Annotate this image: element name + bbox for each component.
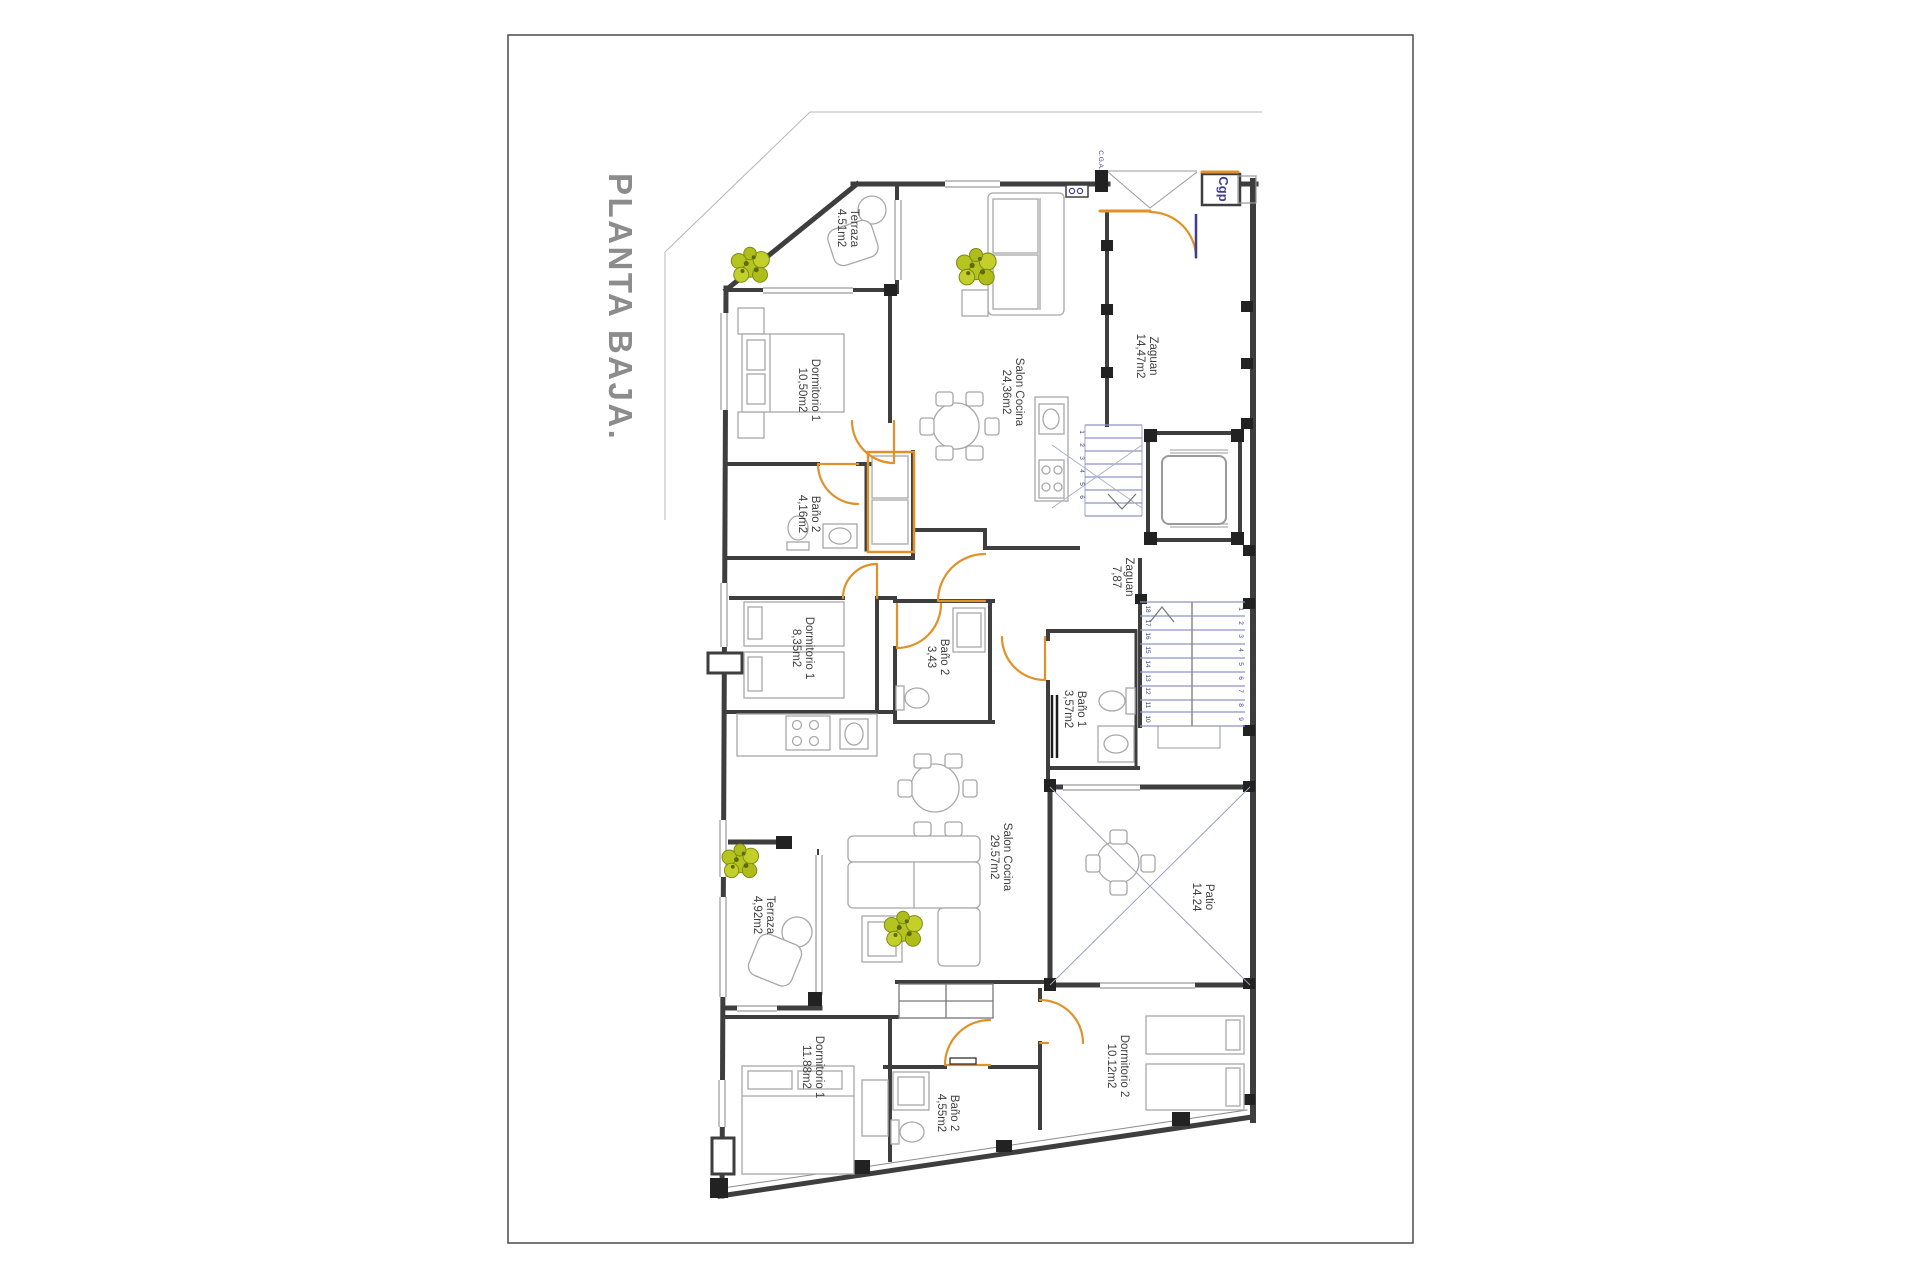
chair bbox=[1110, 881, 1127, 895]
svg-text:14: 14 bbox=[1144, 660, 1151, 668]
chair bbox=[966, 392, 983, 406]
svg-text:2: 2 bbox=[1237, 621, 1244, 625]
dining-table bbox=[933, 403, 979, 449]
floor-plan-canvas: PLANTA BAJA. bbox=[0, 0, 1920, 1280]
svg-text:Salon Cocina: Salon Cocina bbox=[1001, 823, 1013, 892]
closet-panel bbox=[872, 500, 908, 544]
sofa-chaise bbox=[938, 908, 980, 966]
pillow bbox=[747, 340, 765, 370]
side-table bbox=[962, 290, 988, 316]
wardrobe bbox=[862, 1080, 888, 1136]
svg-text:3,43: 3,43 bbox=[925, 646, 937, 668]
svg-text:4: 4 bbox=[1078, 469, 1085, 473]
svg-text:10.12m2: 10.12m2 bbox=[1105, 1044, 1117, 1089]
svg-text:10: 10 bbox=[1144, 715, 1151, 723]
chair bbox=[945, 822, 962, 836]
svg-text:29.57m2: 29.57m2 bbox=[988, 835, 1000, 880]
svg-text:2: 2 bbox=[1078, 443, 1085, 447]
chair bbox=[1110, 830, 1127, 844]
page-title: PLANTA BAJA. bbox=[602, 173, 639, 441]
chair bbox=[898, 780, 912, 797]
toilet-tank bbox=[1126, 688, 1135, 714]
svg-text:1: 1 bbox=[1078, 430, 1085, 434]
cga-label: C.G.A. bbox=[1097, 150, 1104, 170]
svg-text:6: 6 bbox=[1078, 495, 1085, 499]
room-label-dormitorio2-bottom: Dormitorio 2 10.12m2 bbox=[1105, 1035, 1130, 1098]
dining-table bbox=[911, 764, 959, 812]
svg-text:Baño 2: Baño 2 bbox=[809, 496, 821, 532]
toilet-tank bbox=[787, 542, 809, 550]
room-label-patio: Patio 14.24 bbox=[1190, 883, 1215, 912]
svg-text:4: 4 bbox=[1237, 648, 1244, 652]
chair bbox=[914, 822, 931, 836]
stove bbox=[1039, 460, 1064, 498]
svg-text:4,55m2: 4,55m2 bbox=[935, 1094, 947, 1132]
svg-text:Zaguan: Zaguan bbox=[1147, 336, 1159, 375]
pillow bbox=[747, 374, 765, 404]
svg-text:8: 8 bbox=[1237, 703, 1244, 707]
svg-text:11: 11 bbox=[1144, 702, 1151, 709]
svg-text:17: 17 bbox=[1144, 619, 1151, 627]
svg-text:7,87: 7,87 bbox=[1110, 566, 1122, 588]
svg-text:Terraza: Terraza bbox=[764, 896, 776, 935]
chair bbox=[966, 446, 983, 460]
svg-text:3,57m2: 3,57m2 bbox=[1062, 690, 1074, 728]
shower bbox=[953, 608, 985, 652]
svg-text:8,35m2: 8,35m2 bbox=[790, 629, 802, 667]
pillow bbox=[748, 657, 762, 691]
svg-text:4,92m2: 4,92m2 bbox=[751, 896, 763, 934]
svg-text:Baño 2: Baño 2 bbox=[938, 639, 950, 675]
svg-text:5: 5 bbox=[1237, 662, 1244, 666]
toilet-tank bbox=[896, 686, 904, 710]
toilet bbox=[1099, 691, 1125, 711]
nightstand bbox=[738, 308, 764, 334]
room-label-terraza-bottom: Terraza 4,92m2 bbox=[751, 896, 776, 935]
chair bbox=[936, 446, 953, 460]
svg-text:6: 6 bbox=[1237, 676, 1244, 680]
room-label-bano2-top: Baño 2 4,16m2 bbox=[796, 495, 821, 533]
svg-text:18: 18 bbox=[1144, 605, 1151, 613]
sofa-back bbox=[848, 836, 980, 862]
svg-text:Dormitorio 1: Dormitorio 1 bbox=[813, 1036, 825, 1099]
chair bbox=[963, 780, 977, 797]
pillow bbox=[1226, 1020, 1240, 1050]
svg-text:10,50m2: 10,50m2 bbox=[796, 368, 808, 413]
chair bbox=[936, 392, 953, 406]
stove bbox=[786, 716, 830, 750]
svg-text:9: 9 bbox=[1237, 717, 1244, 721]
svg-text:3: 3 bbox=[1078, 456, 1085, 460]
svg-text:3: 3 bbox=[1237, 634, 1244, 638]
svg-text:Dormitorio 2: Dormitorio 2 bbox=[1118, 1035, 1130, 1098]
svg-text:24,36m2: 24,36m2 bbox=[1000, 370, 1012, 415]
svg-text:1: 1 bbox=[1237, 607, 1244, 611]
svg-text:Salon Cocina: Salon Cocina bbox=[1013, 358, 1025, 427]
svg-text:Patio: Patio bbox=[1203, 884, 1215, 910]
toilet bbox=[905, 688, 929, 708]
svg-text:Baño 2: Baño 2 bbox=[948, 1095, 960, 1131]
cgp-label: Cgp bbox=[1216, 176, 1231, 201]
toilet bbox=[900, 1122, 924, 1142]
nightstand bbox=[738, 412, 764, 438]
svg-text:13: 13 bbox=[1144, 674, 1151, 682]
room-label-zaguan-entry: Zaguan 14,47m2 bbox=[1134, 334, 1159, 379]
svg-text:16: 16 bbox=[1144, 632, 1151, 640]
room-label-terraza-top: Terraza 4.51m2 bbox=[835, 209, 860, 248]
patio-table bbox=[1097, 841, 1139, 883]
architectural-sheet: PLANTA BAJA. bbox=[0, 0, 1920, 1280]
room-label-bano1-bottom: Baño 1 3,57m2 bbox=[1062, 690, 1087, 728]
svg-text:14.24: 14.24 bbox=[1190, 883, 1202, 912]
pillow bbox=[1226, 1068, 1240, 1106]
chair bbox=[945, 754, 962, 768]
svg-text:Dormitorio 1: Dormitorio 1 bbox=[803, 617, 815, 680]
pillow bbox=[748, 607, 762, 639]
svg-text:15: 15 bbox=[1144, 646, 1151, 654]
pillow bbox=[748, 1071, 792, 1089]
svg-text:Terraza: Terraza bbox=[848, 209, 860, 248]
sofa-cushion bbox=[993, 199, 1038, 253]
svg-text:Dormitorio 1: Dormitorio 1 bbox=[809, 359, 821, 422]
svg-text:4.51m2: 4.51m2 bbox=[835, 209, 847, 247]
svg-text:12: 12 bbox=[1144, 687, 1151, 695]
chair bbox=[1141, 855, 1155, 872]
svg-text:7: 7 bbox=[1237, 689, 1244, 693]
svg-text:4,16m2: 4,16m2 bbox=[796, 495, 808, 533]
room-label-dormitorio1-top: Dormitorio 1 10,50m2 bbox=[796, 359, 821, 422]
toilet-tank bbox=[891, 1120, 899, 1144]
svg-text:14,47m2: 14,47m2 bbox=[1134, 334, 1146, 379]
svg-text:Baño 1: Baño 1 bbox=[1075, 691, 1087, 727]
room-label-bano2-bottom: Baño 2 4,55m2 bbox=[935, 1094, 960, 1132]
chair bbox=[914, 754, 931, 768]
chair bbox=[1086, 855, 1100, 872]
svg-text:Zaguan: Zaguan bbox=[1123, 557, 1135, 596]
svg-text:11.88m2: 11.88m2 bbox=[800, 1045, 812, 1089]
sofa-cushion bbox=[993, 255, 1038, 309]
chair bbox=[985, 418, 999, 435]
svg-text:5: 5 bbox=[1078, 482, 1085, 486]
chair bbox=[920, 418, 934, 435]
room-label-dormitorio1-bottom: Dormitorio 1 11.88m2 bbox=[800, 1036, 825, 1099]
meter-box-icon bbox=[1066, 185, 1088, 197]
